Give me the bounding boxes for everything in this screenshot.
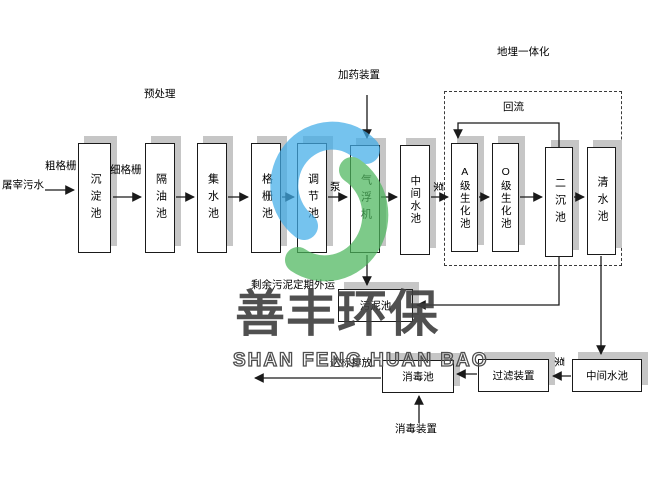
- pump-label-3: 泵: [552, 357, 564, 368]
- disinfection-device-label: 消毒装置: [395, 424, 437, 436]
- watermark-chinese: 善丰环保: [235, 286, 439, 344]
- process-flow-diagram: 沉淀池 隔油池 集水池 格栅池 调节池 气浮机 中间水池 A级生化池 O级生化池…: [0, 0, 650, 500]
- pump-label-2: 泵: [431, 182, 443, 193]
- buried-integration-label: 地埋一体化: [497, 47, 550, 59]
- pretreatment-label: 预处理: [144, 89, 176, 101]
- source-label: 屠宰污水: [2, 180, 44, 192]
- company-logo-swirl: [266, 121, 404, 295]
- arrow-reflux-secondary-to-abio: [458, 123, 559, 147]
- coarse-screen-label: 粗格栅: [45, 161, 77, 173]
- fine-screen-label: 细格栅: [110, 165, 142, 177]
- watermark-english: SHAN FENG HUAN BAO: [233, 351, 489, 372]
- reflux-label: 回流: [503, 102, 524, 114]
- dosing-device-label: 加药装置: [338, 70, 380, 82]
